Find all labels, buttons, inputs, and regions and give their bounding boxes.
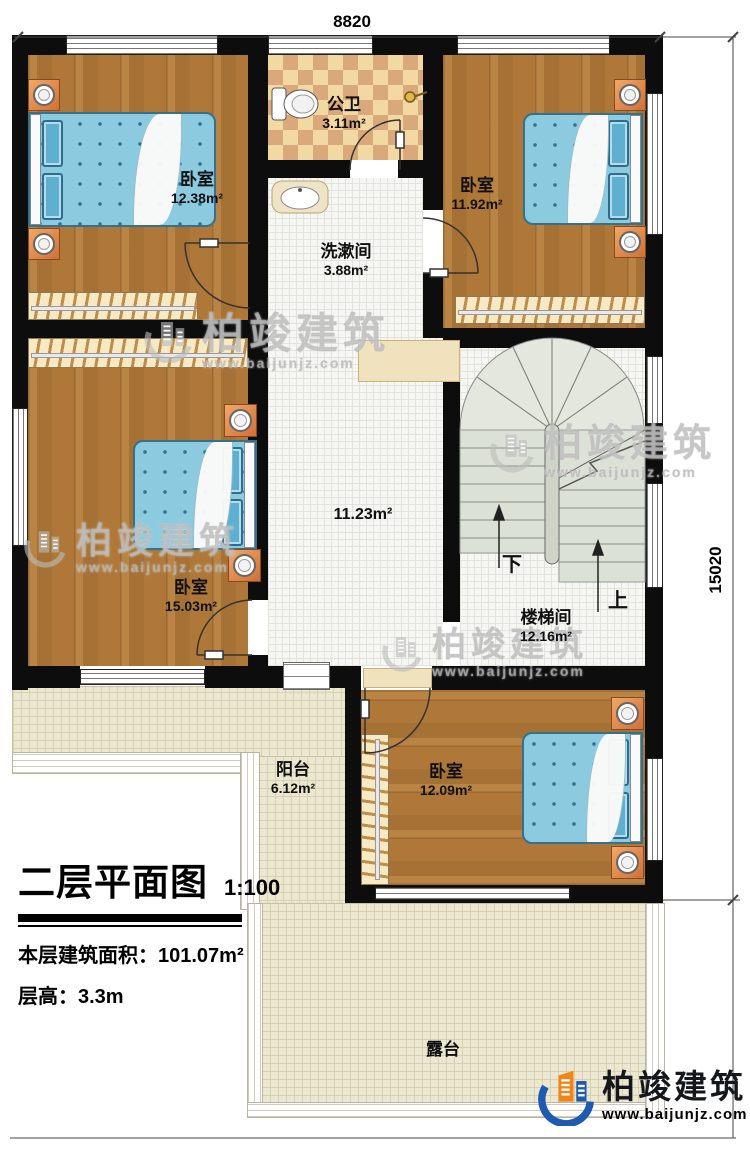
title-underline <box>18 914 242 922</box>
wall-segment <box>330 666 345 688</box>
window <box>646 93 663 235</box>
bed <box>522 732 643 844</box>
room-label-stairwell: 楼梯间12.16m² <box>520 608 572 645</box>
bed-headboard <box>630 734 641 842</box>
room-label-bedroom-w: 卧室15.03m² <box>165 578 217 615</box>
dimension-height: 15020 <box>706 546 726 593</box>
nightstand <box>611 697 644 730</box>
room-label-bedroom-ne: 卧室11.92m² <box>451 176 502 213</box>
wall-segment <box>248 55 268 348</box>
nightstand <box>614 79 646 111</box>
wardrobe <box>361 734 389 885</box>
company-name: 柏竣建筑 <box>602 1070 747 1103</box>
room-label-bedroom-se: 卧室12.09m² <box>420 762 472 799</box>
wardrobe <box>455 296 645 324</box>
nightstand <box>611 846 644 879</box>
wall-segment <box>443 328 663 348</box>
stair-up-label: 上 <box>608 584 628 613</box>
room-label-bathroom: 公卫3.11m² <box>322 95 366 132</box>
pillow <box>608 173 629 220</box>
doorway-mat <box>363 668 432 688</box>
bed-headboard <box>30 114 41 225</box>
wall-segment <box>250 160 350 178</box>
room-label-terrace: 露台 <box>426 1040 460 1060</box>
balcony-railing <box>12 752 260 774</box>
bed-headboard <box>244 442 255 548</box>
balcony-step <box>283 662 330 690</box>
company-logo-icon <box>538 1066 594 1126</box>
floor-plan: 8820 15020 卧室12.38m² 公卫3.11m² 卧室11.92m² … <box>0 0 750 1150</box>
wall-left <box>12 35 28 690</box>
wardrobe <box>28 292 198 320</box>
plan-scale: 1:100 <box>224 875 280 901</box>
wall-segment <box>398 160 423 178</box>
nightstand <box>28 228 60 260</box>
wall-segment <box>12 320 248 338</box>
room-label-washroom: 洗漱间3.88m² <box>321 242 372 279</box>
wall-segment <box>423 273 443 348</box>
room-label-balcony: 阳台6.12m² <box>271 760 315 797</box>
window <box>12 408 28 546</box>
window <box>646 758 663 861</box>
window <box>375 887 570 900</box>
window <box>80 669 205 685</box>
pillow <box>608 120 629 167</box>
pillow <box>42 173 63 220</box>
pillow <box>42 120 63 167</box>
window <box>268 35 373 55</box>
window <box>66 35 218 55</box>
wall-segment <box>345 666 361 903</box>
dimension-width: 8820 <box>333 12 371 32</box>
wall-segment <box>443 382 460 622</box>
window <box>646 483 663 588</box>
window <box>646 356 663 424</box>
stair-down-label: 下 <box>502 548 522 577</box>
room-label-bedroom-nw: 卧室12.38m² <box>171 170 223 207</box>
room-label-hallway: 11.23m² <box>334 505 393 524</box>
bed <box>523 113 643 225</box>
title-block: 二层平面图 1:100 本层建筑面积：101.07m² 层高：3.3m <box>18 852 280 1009</box>
wall-segment <box>423 55 443 210</box>
wardrobe <box>28 338 248 368</box>
company-url: www.baijunjz.com <box>602 1107 747 1122</box>
nightstand <box>614 226 646 258</box>
floor-height-line: 层高：3.3m <box>18 980 280 1009</box>
bed-headboard <box>630 115 641 223</box>
nightstand <box>228 549 261 582</box>
title-underline-thin <box>18 925 242 927</box>
plan-title: 二层平面图 <box>18 852 208 906</box>
floor-area-line: 本层建筑面积：101.07m² <box>18 939 280 968</box>
wall-segment <box>432 666 645 690</box>
wall-segment <box>12 666 80 688</box>
stair-landing-mat <box>358 340 460 382</box>
bed-sheet-fold <box>567 115 609 223</box>
bed <box>133 440 257 550</box>
nightstand <box>28 79 60 111</box>
balcony-floor <box>12 686 347 758</box>
company-logo: 柏竣建筑 www.baijunjz.com <box>538 1066 747 1126</box>
window <box>457 35 610 55</box>
nightstand <box>224 404 257 437</box>
room-hallway <box>268 338 443 666</box>
wall-segment <box>205 666 283 688</box>
